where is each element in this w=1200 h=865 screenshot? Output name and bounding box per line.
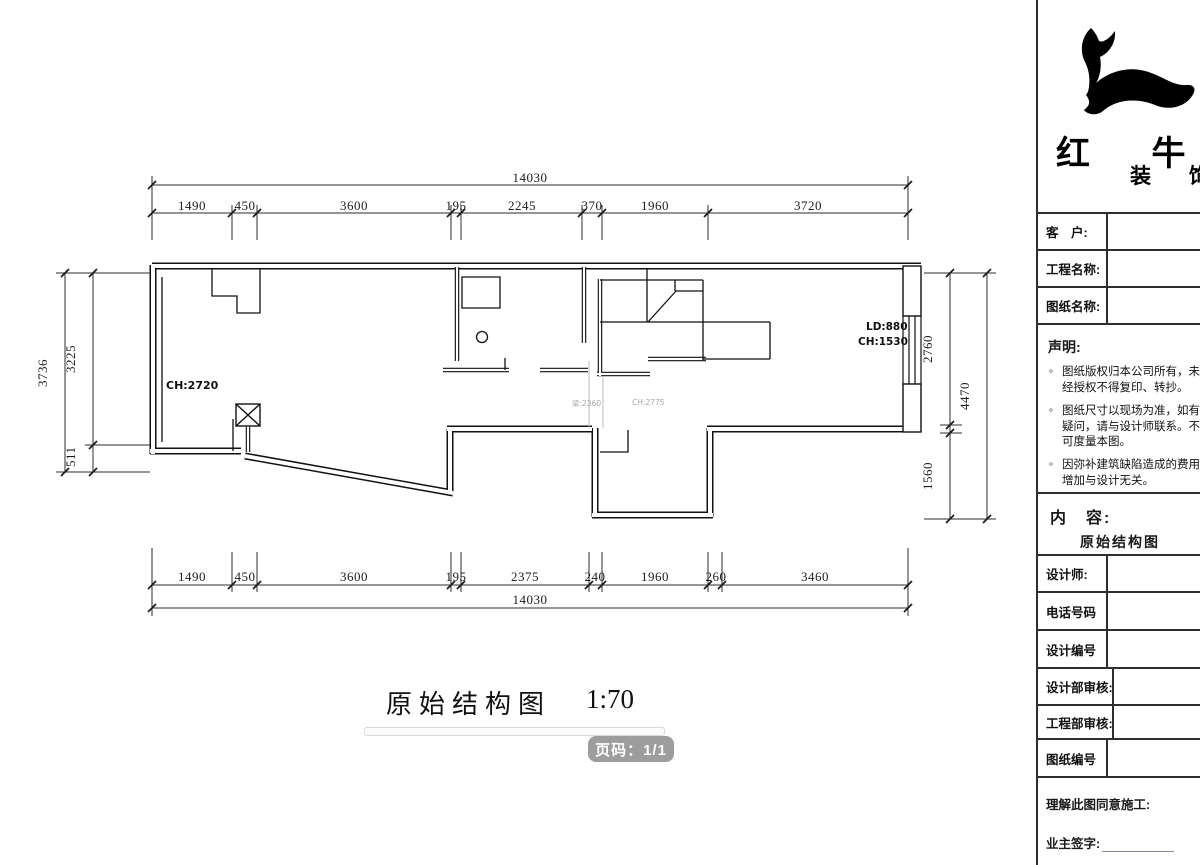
drawing-sheet: 14030 1490 450 3600 195 2245 370 1960 37… [0, 0, 1200, 865]
statement-item: 因弥补建筑缺陷造成的费用增加与设计无关。 [1062, 458, 1200, 490]
row-project: 工程名称: [1038, 249, 1200, 286]
plan-scale: 1:70 [586, 684, 634, 715]
room-ceiling-height-label: CH:2720 [166, 379, 218, 392]
dim-top-seg: 3720 [794, 198, 822, 214]
row-drawing-name: 图纸名称: [1038, 286, 1200, 323]
dimension-lines [56, 176, 996, 616]
agreement-label: 理解此图同意施工: [1046, 794, 1200, 813]
content-label: 内 容: [1050, 504, 1200, 528]
brand-subname: 装 饰 [1130, 160, 1200, 190]
dim-bottom-seg: 240 [585, 569, 606, 585]
statement-item: 图纸版权归本公司所有，未经授权不得复印、转抄。 [1062, 365, 1200, 397]
eng-review-value [1114, 706, 1200, 738]
dim-left-lower: 511 [63, 446, 78, 467]
window-ld-label: LD:880 [866, 321, 908, 333]
dim-top-seg: 1490 [178, 198, 206, 214]
customer-label: 客 户: [1038, 214, 1108, 249]
dim-right-upper: 2760 [920, 335, 935, 363]
dim-left-upper: 3225 [63, 345, 78, 373]
page-number-badge: 页码：1/1 [588, 736, 674, 762]
customer-value [1108, 214, 1200, 249]
statement-title: 声明: [1048, 337, 1200, 357]
owner-sign-label: 业主签字: [1046, 833, 1100, 852]
dim-top-seg: 450 [235, 198, 256, 214]
dim-bottom-seg: 260 [706, 569, 727, 585]
dimension-ticks [61, 181, 991, 612]
dim-top-seg: 3600 [340, 198, 368, 214]
brand-logo-area: 红 牛 装 饰 [1038, 0, 1200, 212]
dim-bottom-total: 14030 [513, 592, 548, 608]
dim-top-total: 14030 [513, 170, 548, 186]
dim-bottom-seg: 2375 [511, 569, 539, 585]
project-label: 工程名称: [1038, 251, 1108, 286]
dim-bottom-seg: 1490 [178, 569, 206, 585]
design-review-label: 设计部审核: [1038, 669, 1114, 704]
dim-top-seg: 2245 [508, 198, 536, 214]
statement-block: 声明: 图纸版权归本公司所有，未经授权不得复印、转抄。 图纸尺寸以现场为准，如有… [1038, 323, 1200, 492]
dim-bottom-seg: 3600 [340, 569, 368, 585]
drawing-no-value [1108, 740, 1200, 776]
plan-title: 原始结构图 [386, 684, 551, 721]
drawing-no-label: 图纸编号 [1038, 740, 1108, 776]
title-block-panel: 红 牛 装 饰 客 户: 工程名称: 图纸名称: 声明: 图纸版权归本公司所有，… [1036, 0, 1200, 865]
row-design-no: 设计编号 [1038, 629, 1200, 667]
row-designer: 设计师: [1038, 554, 1200, 591]
dim-right-lower: 1560 [920, 462, 935, 490]
row-customer: 客 户: [1038, 212, 1200, 249]
window-ch-label: CH:1530 [858, 336, 908, 348]
agreement-block: 理解此图同意施工: 业主签字: [1038, 776, 1200, 865]
designer-value [1108, 556, 1200, 591]
design-no-label: 设计编号 [1038, 631, 1108, 667]
right-wall-window [903, 266, 921, 432]
dim-bottom-seg: 3460 [801, 569, 829, 585]
dim-bottom-seg: 450 [235, 569, 256, 585]
title-underline-bar [364, 727, 665, 736]
eng-review-label: 工程部审核: [1038, 706, 1114, 738]
dim-bottom-seg: 195 [446, 569, 467, 585]
design-no-value [1108, 631, 1200, 667]
dim-top-seg: 195 [446, 198, 467, 214]
drawing-name-label: 图纸名称: [1038, 288, 1108, 323]
beam-label: 梁:2360 [572, 398, 601, 409]
phone-label: 电话号码 [1038, 593, 1108, 629]
content-block: 内 容: 原始结构图 [1038, 492, 1200, 554]
owner-signature-line [1102, 839, 1174, 852]
dim-left-outer: 3736 [35, 359, 50, 387]
content-value: 原始结构图 [1038, 532, 1200, 552]
statement-item: 图纸尺寸以现场为准，如有疑问，请与设计师联系。不可度量本图。 [1062, 404, 1200, 452]
row-phone: 电话号码 [1038, 591, 1200, 629]
project-value [1108, 251, 1200, 286]
row-eng-review: 工程部审核: [1038, 704, 1200, 738]
design-review-value [1114, 669, 1200, 704]
drawing-name-value [1108, 288, 1200, 323]
dim-top-seg: 370 [582, 198, 603, 214]
beam-ch-label: CH:2775 [632, 398, 665, 407]
phone-value [1108, 593, 1200, 629]
designer-label: 设计师: [1038, 556, 1108, 591]
dim-bottom-seg: 1960 [641, 569, 669, 585]
row-design-review: 设计部审核: [1038, 667, 1200, 704]
row-drawing-no: 图纸编号 [1038, 738, 1200, 776]
column-x-box [236, 404, 260, 426]
dim-right-outer: 4470 [957, 382, 972, 410]
dim-top-seg: 1960 [641, 198, 669, 214]
